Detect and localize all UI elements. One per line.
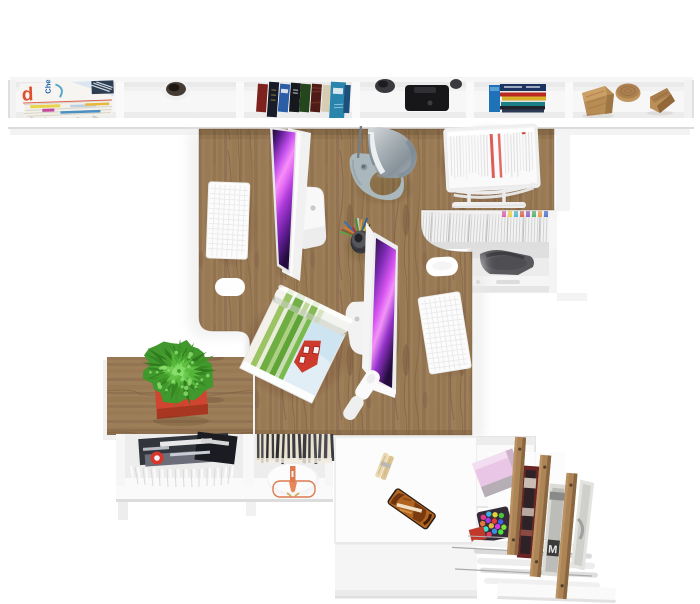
svg-text:d: d <box>21 84 33 105</box>
svg-text:M: M <box>548 544 558 557</box>
svg-text:Che: Che <box>43 79 52 93</box>
